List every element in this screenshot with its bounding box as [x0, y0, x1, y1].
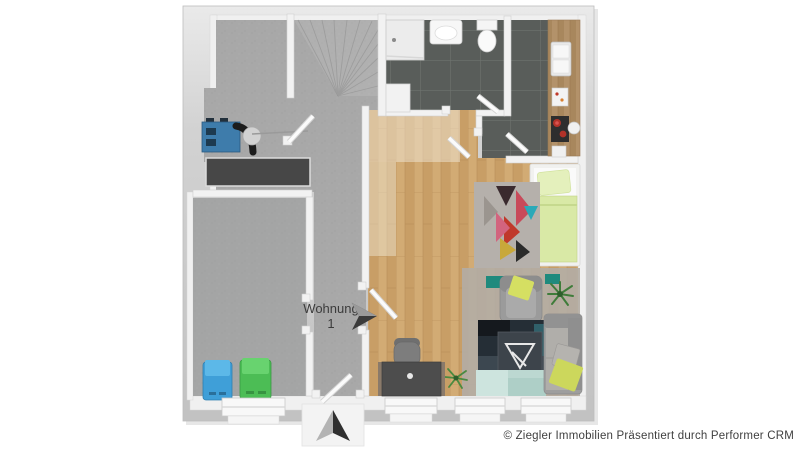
- toilet-bowl: [478, 30, 496, 52]
- unit-label-line1: Wohnung: [303, 301, 358, 316]
- toilet-tank: [477, 20, 497, 30]
- teal-rug: [476, 370, 546, 396]
- wall-apartment-left-upper: [362, 106, 369, 288]
- stove: [551, 116, 569, 142]
- corridor-pale-floor: [368, 110, 460, 162]
- wall-stair-bathroom: [378, 14, 386, 116]
- washbasin-bowl: [435, 26, 457, 40]
- wall-lining-left: [187, 192, 193, 400]
- window: [455, 398, 505, 422]
- wall-bathroom-bottom-right: [476, 110, 505, 116]
- floorplan-canvas: Wohnung 1: [0, 0, 800, 450]
- wall-stair-stub: [287, 14, 294, 98]
- kitchen-board: [552, 88, 568, 106]
- kitchen-item: [552, 146, 566, 157]
- wall-storage-hall-lower: [306, 332, 313, 396]
- door-post: [312, 390, 320, 398]
- door-post: [358, 282, 366, 290]
- corridor-pale-strip: [368, 162, 396, 256]
- window: [521, 398, 571, 422]
- kitchen-furniture: [548, 20, 580, 157]
- coffee-table: [498, 332, 542, 376]
- unit-label-line2: 1: [327, 316, 334, 331]
- wall-bathroom-kitchen: [504, 16, 511, 116]
- shower: [386, 20, 424, 60]
- bath-cabinet: [386, 84, 410, 112]
- entrance-hall-floor: [314, 190, 366, 396]
- wall-storage-hall-upper: [306, 197, 313, 300]
- rug-teal-patch: [545, 274, 560, 284]
- wall-apartment-left-lower: [362, 330, 369, 396]
- armchair: [500, 275, 542, 322]
- copyright-text: © Ziegler Immobilien Präsentiert durch P…: [504, 430, 794, 442]
- door-post: [474, 128, 482, 136]
- desk: [382, 362, 441, 396]
- wall-storage-top: [193, 190, 312, 197]
- wall-kitchen-bottom: [506, 156, 578, 163]
- door-post: [356, 390, 364, 398]
- pot: [568, 122, 580, 134]
- shower-drain: [392, 38, 396, 42]
- door-post: [442, 106, 450, 114]
- door-post: [302, 326, 310, 334]
- shaft: [206, 158, 310, 186]
- north-arrow-icon: [302, 404, 364, 446]
- desk-grommet: [407, 373, 413, 379]
- pattern-rug: [474, 182, 540, 268]
- window: [222, 398, 285, 424]
- bed-pillow: [537, 169, 571, 195]
- boiler-drum: [243, 127, 261, 145]
- floorplan-page: Wohnung 1 © Ziegler Immobilien Präsentie…: [0, 0, 800, 450]
- door-post: [358, 326, 366, 334]
- sofa: [544, 314, 584, 394]
- window: [385, 398, 437, 422]
